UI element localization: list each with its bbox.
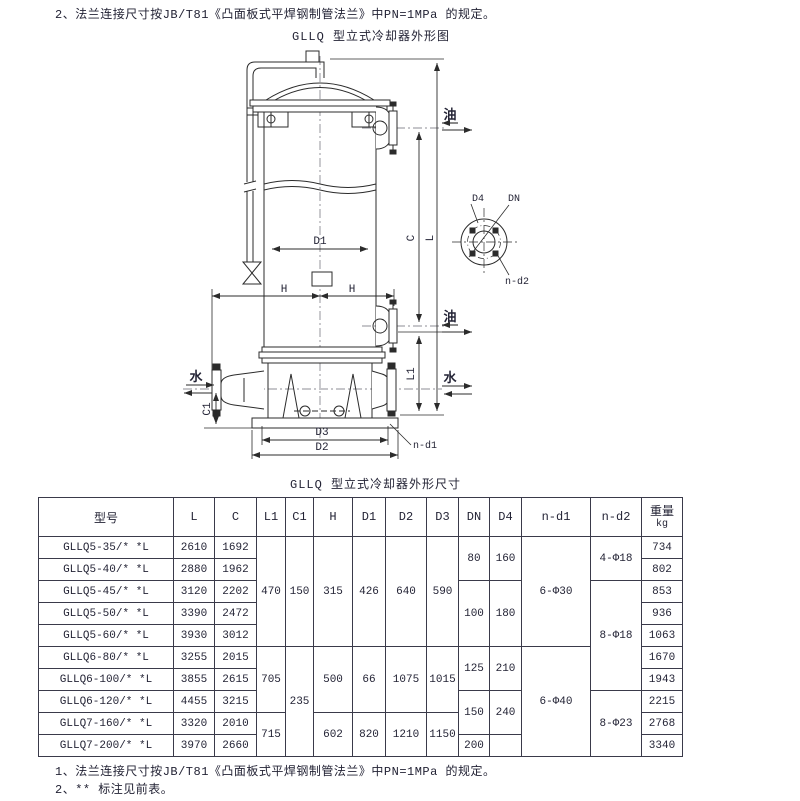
cell-D1: 426 xyxy=(353,537,386,647)
cell-n-d2: 8-Φ18 xyxy=(591,581,642,691)
label-dn: DN xyxy=(508,194,520,205)
cell-weight: 3340 xyxy=(642,735,683,757)
oil-port-bottom xyxy=(373,300,397,352)
note-bottom-1: 1、法兰连接尺寸按JB/T81《凸面板式平焊钢制管法兰》中PN=1MPa 的规定… xyxy=(55,762,496,779)
header-model: 型号 xyxy=(39,498,174,537)
cell-DN: 200 xyxy=(459,735,490,757)
cell-C: 3215 xyxy=(215,691,257,713)
cell-L1: 470 xyxy=(257,537,286,647)
valve-icon xyxy=(243,262,261,273)
label-d3: D3 xyxy=(315,427,328,439)
cell-n-d2: 4-Φ18 xyxy=(591,537,642,581)
cell-model: GLLQ5-35/* *L xyxy=(39,537,174,559)
cell-model: GLLQ6-120/* *L xyxy=(39,691,174,713)
header-l1: L1 xyxy=(257,498,286,537)
cell-DN: 125 xyxy=(459,647,490,691)
label-oil: 油 xyxy=(443,107,456,123)
flange-detail xyxy=(452,204,518,276)
cell-DN: 80 xyxy=(459,537,490,581)
label-oil: 油 xyxy=(443,309,456,325)
label-n-d1: n-d1 xyxy=(413,440,437,452)
cell-L: 3120 xyxy=(174,581,215,603)
cell-model: GLLQ5-60/* *L xyxy=(39,625,174,647)
cell-C1: 150 xyxy=(286,537,314,647)
header-n-d1: n-d1 xyxy=(522,498,591,537)
cooler-outline-drawing: D1 H H C L L1 C1 D3 D2 n-d1 油 油 水 水 D4 D… xyxy=(170,45,540,465)
valve-icon xyxy=(243,273,261,284)
label-n-d2: n-d2 xyxy=(505,276,529,288)
cell-D4: 160 xyxy=(490,537,522,581)
label-l: L xyxy=(425,235,437,242)
cell-D3: 590 xyxy=(427,537,459,647)
cell-C: 3012 xyxy=(215,625,257,647)
cell-weight: 734 xyxy=(642,537,683,559)
header-weight-label: 重量 xyxy=(642,505,682,519)
cell-D4: 240 xyxy=(490,691,522,735)
cell-D4: 210 xyxy=(490,647,522,691)
cell-DN: 150 xyxy=(459,691,490,735)
cell-D4 xyxy=(490,735,522,757)
cell-D3: 1150 xyxy=(427,713,459,757)
cell-model: GLLQ6-80/* *L xyxy=(39,647,174,669)
cell-weight: 936 xyxy=(642,603,683,625)
cell-C1: 235 xyxy=(286,647,314,757)
cell-weight: 2768 xyxy=(642,713,683,735)
cell-weight: 853 xyxy=(642,581,683,603)
header-d4: D4 xyxy=(490,498,522,537)
cell-L: 2880 xyxy=(174,559,215,581)
table-row: GLLQ5-35/* *L 2610 1692 470 150 315 426 … xyxy=(39,537,683,559)
cell-D3: 1015 xyxy=(427,647,459,713)
label-d1: D1 xyxy=(313,236,327,248)
cell-L: 3255 xyxy=(174,647,215,669)
header-row: 型号 L C L1 C1 H D1 D2 D3 DN D4 n-d1 n-d2 … xyxy=(39,498,683,537)
cell-weight: 1670 xyxy=(642,647,683,669)
cell-C: 2660 xyxy=(215,735,257,757)
cell-C: 2015 xyxy=(215,647,257,669)
cell-weight: 802 xyxy=(642,559,683,581)
cell-D1: 66 xyxy=(353,647,386,713)
label-h: H xyxy=(349,284,356,296)
label-water: 水 xyxy=(443,370,457,386)
label-water: 水 xyxy=(189,369,203,385)
header-h: H xyxy=(314,498,353,537)
cell-L: 3970 xyxy=(174,735,215,757)
cell-C: 2010 xyxy=(215,713,257,735)
header-weight: 重量 kg xyxy=(642,498,683,537)
cell-model: GLLQ6-100/* *L xyxy=(39,669,174,691)
header-dn: DN xyxy=(459,498,490,537)
note-bottom-2: 2、** 标注见前表。 xyxy=(55,780,173,797)
cell-L1: 705 xyxy=(257,647,286,713)
cell-C: 2472 xyxy=(215,603,257,625)
cell-model: GLLQ7-160/* *L xyxy=(39,713,174,735)
label-h: H xyxy=(281,284,288,296)
cell-D4: 180 xyxy=(490,581,522,647)
cell-n-d1: 6-Φ40 xyxy=(522,647,591,757)
cell-weight: 2215 xyxy=(642,691,683,713)
table-title: GLLQ 型立式冷却器外形尺寸 xyxy=(290,475,461,492)
cell-L: 3930 xyxy=(174,625,215,647)
cell-model: GLLQ7-200/* *L xyxy=(39,735,174,757)
cell-n-d2: 8-Φ23 xyxy=(591,691,642,757)
header-d2: D2 xyxy=(386,498,427,537)
header-weight-unit: kg xyxy=(642,519,682,530)
header-c: C xyxy=(215,498,257,537)
water-port-left xyxy=(212,364,264,416)
cell-H: 315 xyxy=(314,537,353,647)
cell-weight: 1063 xyxy=(642,625,683,647)
cell-C: 2202 xyxy=(215,581,257,603)
cell-D2: 1075 xyxy=(386,647,427,713)
dimension-table: 型号 L C L1 C1 H D1 D2 D3 DN D4 n-d1 n-d2 … xyxy=(38,497,683,757)
table-row: GLLQ6-80/* *L 3255 2015 705 235 500 66 1… xyxy=(39,647,683,669)
oil-port-top xyxy=(373,102,397,154)
cell-model: GLLQ5-45/* *L xyxy=(39,581,174,603)
cell-L: 4455 xyxy=(174,691,215,713)
cell-D1: 820 xyxy=(353,713,386,757)
label-c1: C1 xyxy=(202,402,214,416)
note-top: 2、法兰连接尺寸按JB/T81《凸面板式平焊钢制管法兰》中PN=1MPa 的规定… xyxy=(55,5,496,22)
label-l1: L1 xyxy=(406,367,418,381)
cell-model: GLLQ5-40/* *L xyxy=(39,559,174,581)
cell-L: 2610 xyxy=(174,537,215,559)
cell-L: 3320 xyxy=(174,713,215,735)
label-d2: D2 xyxy=(315,442,328,454)
label-c: C xyxy=(406,234,418,241)
water-port-right xyxy=(372,363,396,416)
cell-model: GLLQ5-50/* *L xyxy=(39,603,174,625)
cell-L1: 715 xyxy=(257,713,286,757)
cell-n-d1: 6-Φ30 xyxy=(522,537,591,647)
header-d1: D1 xyxy=(353,498,386,537)
cell-C: 2615 xyxy=(215,669,257,691)
cell-L: 3855 xyxy=(174,669,215,691)
header-l: L xyxy=(174,498,215,537)
cell-C: 1962 xyxy=(215,559,257,581)
cell-DN: 100 xyxy=(459,581,490,647)
diagram-title: GLLQ 型立式冷却器外形图 xyxy=(292,27,450,44)
label-d4: D4 xyxy=(472,194,484,205)
cell-L: 3390 xyxy=(174,603,215,625)
cell-weight: 1943 xyxy=(642,669,683,691)
cell-D2: 640 xyxy=(386,537,427,647)
cell-D2: 1210 xyxy=(386,713,427,757)
header-n-d2: n-d2 xyxy=(591,498,642,537)
cell-H: 602 xyxy=(314,713,353,757)
cell-H: 500 xyxy=(314,647,353,713)
header-c1: C1 xyxy=(286,498,314,537)
header-d3: D3 xyxy=(427,498,459,537)
cell-C: 1692 xyxy=(215,537,257,559)
document-page: 2、法兰连接尺寸按JB/T81《凸面板式平焊钢制管法兰》中PN=1MPa 的规定… xyxy=(0,0,800,801)
